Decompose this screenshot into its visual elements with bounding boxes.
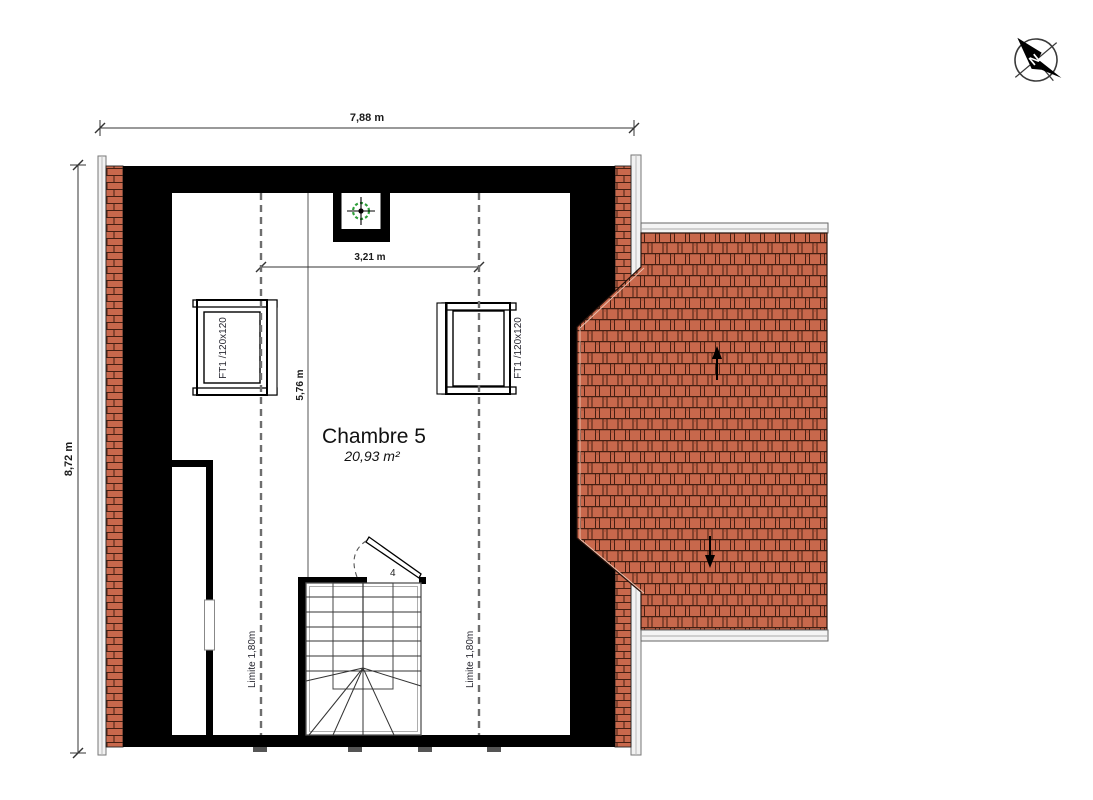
closet-sliding-door <box>205 600 215 650</box>
roof-window-right-label: FT1 /120x120 <box>513 317 524 379</box>
annex-roof-gutter-top <box>641 223 828 233</box>
dimension-left-label: 8,72 m <box>63 442 75 476</box>
duct-niche <box>333 193 390 242</box>
bottom-wall-markers <box>253 747 501 752</box>
left-roof-edge-tiles <box>106 166 123 747</box>
room-area: 20,93 m² <box>343 448 401 464</box>
room-name: Chambre 5 <box>322 425 426 448</box>
north-arrow: N <box>997 20 1076 100</box>
closet-wall-side <box>206 460 213 735</box>
floor-plan-canvas: N 7,88 m 8,72 m <box>0 0 1093 800</box>
dimension-inner-width-label: 3,21 m <box>354 252 385 263</box>
floor-plan-page: N 7,88 m 8,72 m <box>0 0 1093 800</box>
stairwell: 4 <box>298 537 426 735</box>
dimension-top-label: 7,88 m <box>350 112 384 124</box>
ridge-height-label: 5,76 m <box>295 369 306 400</box>
stair-wall-left <box>298 577 306 735</box>
roof-window-right <box>437 303 516 394</box>
closet-partition <box>172 460 215 735</box>
stair-door-swing-arc <box>354 541 366 577</box>
dimension-inner-width <box>256 262 484 272</box>
height-limit-label-left: Limite 1,80m <box>247 631 258 688</box>
height-limit-label-right: Limite 1,80m <box>465 631 476 688</box>
stair-door-number: 4 <box>390 568 396 579</box>
roof-window-left <box>193 300 277 395</box>
roof-window-left-label: FT1 /120x120 <box>218 317 229 379</box>
